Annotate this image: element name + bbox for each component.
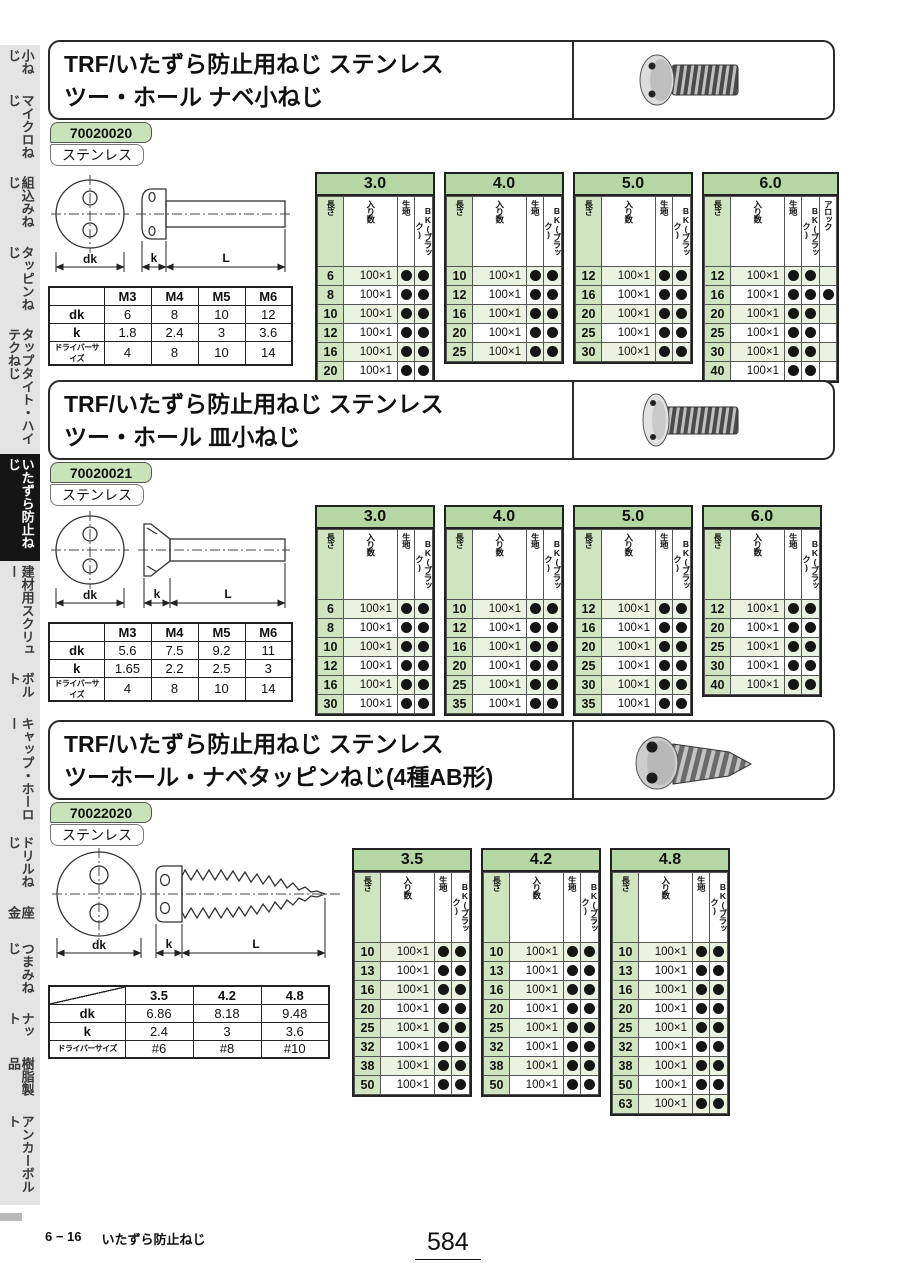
availability-dot bbox=[530, 346, 541, 357]
size-table-header: 5.0 bbox=[575, 507, 691, 529]
title-divider bbox=[572, 722, 574, 798]
qty-cell: 100×1 bbox=[602, 324, 656, 343]
availability-cell bbox=[435, 981, 452, 1000]
availability-dot bbox=[418, 622, 429, 633]
qty-cell: 100×1 bbox=[510, 1076, 564, 1095]
length-cell: 20 bbox=[447, 657, 473, 676]
size-table-5.0: 5.0長さ入り数生地BK(ブラック)12100×116100×120100×12… bbox=[573, 172, 693, 364]
availability-dot bbox=[455, 1079, 466, 1090]
col-header-label: 入り数 bbox=[366, 533, 375, 556]
availability-cell bbox=[785, 638, 802, 657]
qty-cell: 100×1 bbox=[639, 1076, 693, 1095]
availability-dot bbox=[584, 1041, 595, 1052]
availability-dot bbox=[567, 1060, 578, 1071]
length-cell: 25 bbox=[576, 657, 602, 676]
qty-cell: 100×1 bbox=[731, 676, 785, 695]
availability-dot bbox=[547, 308, 558, 319]
availability-dot bbox=[584, 965, 595, 976]
qty-cell: 100×1 bbox=[731, 343, 785, 362]
availability-cell bbox=[581, 962, 599, 981]
table-row: 16100×1 bbox=[613, 981, 728, 1000]
qty-cell: 100×1 bbox=[510, 1019, 564, 1038]
dim-value-cell: #10 bbox=[261, 1040, 329, 1058]
col-header: BK(ブラック) bbox=[415, 197, 433, 267]
qty-cell: 100×1 bbox=[510, 1057, 564, 1076]
page-edge-mark bbox=[0, 1213, 22, 1221]
dim-col-header: M5 bbox=[198, 287, 245, 305]
table-row: 12100×1 bbox=[705, 267, 837, 286]
sidebar-tab[interactable]: タップタイト・ハイテクねじ bbox=[0, 324, 40, 454]
col-header-label: BK(ブラック) bbox=[673, 533, 690, 594]
sidebar-tab[interactable]: タッピンねじ bbox=[0, 242, 40, 324]
product-code-badge: 70022020 bbox=[50, 802, 152, 823]
availability-dot bbox=[418, 327, 429, 338]
col-header: BK(ブラック) bbox=[581, 873, 599, 943]
page-number: 584 bbox=[415, 1228, 481, 1260]
sidebar-tab[interactable]: ナット bbox=[0, 1008, 40, 1053]
qty-cell: 100×1 bbox=[731, 600, 785, 619]
availability-cell bbox=[656, 286, 673, 305]
availability-dot bbox=[530, 327, 541, 338]
product-title-box: TRF/いたずら防止用ねじ ステンレス ツー・ホール 皿小ねじ bbox=[48, 380, 835, 460]
availability-dot bbox=[676, 622, 687, 633]
title-divider bbox=[572, 382, 574, 458]
col-header: 長さ bbox=[318, 197, 344, 267]
length-cell: 16 bbox=[576, 619, 602, 638]
dim-value-cell: 8 bbox=[151, 305, 198, 323]
svg-text:k: k bbox=[151, 251, 158, 265]
availability-cell bbox=[544, 324, 562, 343]
length-cell: 30 bbox=[318, 695, 344, 714]
availability-cell bbox=[693, 1095, 710, 1114]
sidebar-tab[interactable]: 樹脂製品 bbox=[0, 1053, 40, 1110]
qty-cell: 100×1 bbox=[473, 619, 527, 638]
availability-cell bbox=[785, 324, 802, 343]
table-row: 32100×1 bbox=[355, 1038, 470, 1057]
availability-cell bbox=[435, 943, 452, 962]
qty-cell: 100×1 bbox=[731, 305, 785, 324]
availability-dot bbox=[455, 946, 466, 957]
availability-cell bbox=[820, 362, 837, 381]
length-cell: 25 bbox=[484, 1019, 510, 1038]
availability-dot bbox=[530, 603, 541, 614]
dim-value-cell: #8 bbox=[193, 1040, 261, 1058]
availability-cell bbox=[415, 695, 433, 714]
qty-cell: 100×1 bbox=[473, 305, 527, 324]
dim-value-cell: 4 bbox=[104, 341, 151, 365]
dim-col-header: M6 bbox=[245, 287, 292, 305]
table-row: 13100×1 bbox=[355, 962, 470, 981]
col-header: BK(ブラック) bbox=[415, 530, 433, 600]
qty-cell: 100×1 bbox=[510, 1000, 564, 1019]
qty-cell: 100×1 bbox=[639, 1095, 693, 1114]
availability-dot bbox=[401, 365, 412, 376]
table-row: 8100×1 bbox=[318, 286, 433, 305]
availability-dot bbox=[547, 346, 558, 357]
availability-dot bbox=[455, 984, 466, 995]
col-header-label: 入り数 bbox=[753, 533, 762, 556]
availability-cell bbox=[544, 676, 562, 695]
size-tables: 3.0長さ入り数生地BK(ブラック)6100×18100×110100×1121… bbox=[315, 505, 822, 716]
availability-dot bbox=[418, 641, 429, 652]
sidebar-tab[interactable]: 小ねじ bbox=[0, 45, 40, 90]
availability-cell bbox=[785, 676, 802, 695]
availability-cell bbox=[802, 305, 820, 324]
availability-cell bbox=[415, 286, 433, 305]
col-header-label: BK(ブラック) bbox=[452, 876, 469, 937]
svg-text:dk: dk bbox=[92, 938, 106, 952]
qty-cell: 100×1 bbox=[639, 1038, 693, 1057]
product-title-box: TRF/いたずら防止用ねじ ステンレス ツー・ホール ナベ小ねじ bbox=[48, 40, 835, 120]
col-header-label: 長さ bbox=[326, 533, 335, 548]
availability-cell bbox=[673, 324, 691, 343]
availability-dot bbox=[584, 1003, 595, 1014]
col-header-label: BK(ブラック) bbox=[673, 200, 690, 261]
availability-cell bbox=[673, 638, 691, 657]
availability-dot bbox=[659, 327, 670, 338]
dim-value-cell: 8 bbox=[151, 677, 198, 701]
availability-cell bbox=[435, 1019, 452, 1038]
dim-row-label: k bbox=[49, 659, 104, 677]
footer-section-number: 6 − 16 bbox=[45, 1229, 82, 1248]
availability-dot bbox=[805, 603, 816, 614]
table-row: 38100×1 bbox=[355, 1057, 470, 1076]
dim-value-cell: 5.6 bbox=[104, 641, 151, 659]
dim-value-cell: 12 bbox=[245, 305, 292, 323]
availability-cell bbox=[673, 305, 691, 324]
availability-dot bbox=[788, 365, 799, 376]
availability-cell bbox=[693, 962, 710, 981]
col-header: 入り数 bbox=[602, 197, 656, 267]
size-table-header: 6.0 bbox=[704, 507, 820, 529]
length-cell: 25 bbox=[355, 1019, 381, 1038]
availability-cell bbox=[693, 981, 710, 1000]
qty-cell: 100×1 bbox=[344, 676, 398, 695]
col-header: BK(ブラック) bbox=[673, 530, 691, 600]
availability-cell bbox=[564, 1019, 581, 1038]
col-header: 長さ bbox=[576, 197, 602, 267]
table-row: 10100×1 bbox=[447, 600, 562, 619]
dim-value-cell: 11 bbox=[245, 641, 292, 659]
availability-cell bbox=[544, 695, 562, 714]
length-cell: 12 bbox=[318, 324, 344, 343]
table-row: 12100×1 bbox=[447, 286, 562, 305]
sidebar-tab[interactable]: 組込みねじ bbox=[0, 172, 40, 242]
availability-cell bbox=[785, 657, 802, 676]
availability-cell bbox=[415, 305, 433, 324]
dim-col-header: 4.8 bbox=[261, 986, 329, 1004]
availability-cell bbox=[544, 343, 562, 362]
qty-cell: 100×1 bbox=[344, 343, 398, 362]
availability-dot bbox=[401, 641, 412, 652]
title-line1: TRF/いたずら防止用ねじ ステンレス bbox=[64, 388, 444, 421]
availability-cell bbox=[802, 343, 820, 362]
qty-cell: 100×1 bbox=[639, 981, 693, 1000]
availability-cell bbox=[415, 676, 433, 695]
availability-cell bbox=[673, 619, 691, 638]
col-header-label: BK(ブラック) bbox=[544, 533, 561, 594]
dim-corner-cell bbox=[49, 287, 104, 305]
sidebar-tab[interactable]: マイクロねじ bbox=[0, 90, 40, 172]
size-table-header: 4.8 bbox=[612, 850, 728, 872]
dim-value-cell: 9.48 bbox=[261, 1004, 329, 1022]
length-cell: 12 bbox=[705, 600, 731, 619]
length-cell: 8 bbox=[318, 286, 344, 305]
title-line2: ツーホール・ナベタッピンねじ(4種AB形) bbox=[64, 761, 493, 794]
qty-cell: 100×1 bbox=[473, 638, 527, 657]
availability-dot bbox=[676, 698, 687, 709]
length-cell: 10 bbox=[613, 943, 639, 962]
dim-col-header: M5 bbox=[198, 623, 245, 641]
availability-cell bbox=[581, 981, 599, 1000]
qty-cell: 100×1 bbox=[731, 619, 785, 638]
col-header-label: 長さ bbox=[713, 200, 722, 215]
availability-dot bbox=[696, 984, 707, 995]
availability-dot bbox=[696, 1022, 707, 1033]
availability-dot bbox=[713, 1060, 724, 1071]
availability-dot bbox=[438, 1003, 449, 1014]
col-header: 生地 bbox=[527, 530, 544, 600]
table-row: 10100×1 bbox=[484, 943, 599, 962]
table-row: 40100×1 bbox=[705, 676, 820, 695]
qty-cell: 100×1 bbox=[731, 267, 785, 286]
product-photo-tapping-screw bbox=[585, 728, 825, 794]
col-header-label: BK(ブラック) bbox=[802, 533, 819, 594]
availability-dot bbox=[547, 641, 558, 652]
col-header: 長さ bbox=[576, 530, 602, 600]
table-row: 16100×1 bbox=[447, 638, 562, 657]
qty-cell: 100×1 bbox=[473, 676, 527, 695]
col-header: 生地 bbox=[527, 197, 544, 267]
availability-cell bbox=[398, 600, 415, 619]
qty-cell: 100×1 bbox=[510, 1038, 564, 1057]
availability-cell bbox=[544, 619, 562, 638]
qty-cell: 100×1 bbox=[381, 1076, 435, 1095]
sidebar-tab[interactable]: ドリルねじ bbox=[0, 832, 40, 902]
availability-dot bbox=[418, 603, 429, 614]
availability-cell bbox=[656, 657, 673, 676]
availability-dot bbox=[676, 660, 687, 671]
col-header-label: 入り数 bbox=[661, 876, 670, 899]
size-table-header: 6.0 bbox=[704, 174, 837, 196]
length-cell: 30 bbox=[576, 343, 602, 362]
length-cell: 38 bbox=[484, 1057, 510, 1076]
availability-dot bbox=[567, 1003, 578, 1014]
availability-dot bbox=[547, 698, 558, 709]
table-row: 30100×1 bbox=[576, 343, 691, 362]
table-row: 16100×1 bbox=[576, 286, 691, 305]
svg-text:L: L bbox=[252, 937, 259, 951]
availability-dot bbox=[696, 1003, 707, 1014]
table-row: 16100×1 bbox=[318, 676, 433, 695]
dim-value-cell: 8.18 bbox=[193, 1004, 261, 1022]
availability-dot bbox=[530, 679, 541, 690]
availability-dot bbox=[713, 946, 724, 957]
availability-cell bbox=[581, 1076, 599, 1095]
qty-cell: 100×1 bbox=[473, 600, 527, 619]
sidebar-tab-selected[interactable]: いたずら防止ねじ bbox=[0, 454, 40, 561]
availability-dot bbox=[438, 1022, 449, 1033]
table-row: 25100×1 bbox=[705, 324, 837, 343]
table-row: 50100×1 bbox=[484, 1076, 599, 1095]
availability-cell bbox=[673, 676, 691, 695]
length-cell: 30 bbox=[576, 676, 602, 695]
col-header-label: 生地 bbox=[697, 876, 706, 891]
col-header: 入り数 bbox=[731, 530, 785, 600]
table-row: 20100×1 bbox=[576, 305, 691, 324]
table-row: 32100×1 bbox=[613, 1038, 728, 1057]
size-table-3.0: 3.0長さ入り数生地BK(ブラック)6100×18100×110100×1121… bbox=[315, 505, 435, 716]
availability-cell bbox=[435, 1057, 452, 1076]
dim-corner-cell bbox=[49, 986, 125, 1004]
col-header-label: 長さ bbox=[713, 533, 722, 548]
dim-row-label: ドライバーサイズ bbox=[49, 341, 104, 365]
col-header: 入り数 bbox=[473, 530, 527, 600]
col-header-label: 長さ bbox=[455, 200, 464, 215]
dim-value-cell: 3 bbox=[245, 659, 292, 677]
product-photo-pan-head-screw bbox=[585, 48, 825, 114]
col-header-label: 入り数 bbox=[495, 533, 504, 556]
col-header: 生地 bbox=[398, 530, 415, 600]
availability-cell bbox=[581, 1057, 599, 1076]
col-header-label: 長さ bbox=[455, 533, 464, 548]
length-cell: 10 bbox=[447, 600, 473, 619]
qty-cell: 100×1 bbox=[602, 286, 656, 305]
availability-dot bbox=[805, 327, 816, 338]
dimension-table: M3M4M5M6dk5.67.59.211k1.652.22.53ドライバーサイ… bbox=[48, 622, 293, 702]
title-line1: TRF/いたずら防止用ねじ ステンレス bbox=[64, 728, 493, 761]
length-cell: 20 bbox=[318, 362, 344, 381]
qty-cell: 100×1 bbox=[639, 1019, 693, 1038]
qty-cell: 100×1 bbox=[602, 343, 656, 362]
availability-cell bbox=[435, 962, 452, 981]
length-cell: 30 bbox=[705, 343, 731, 362]
length-cell: 12 bbox=[447, 286, 473, 305]
availability-cell bbox=[415, 619, 433, 638]
availability-cell bbox=[452, 1038, 470, 1057]
availability-cell bbox=[564, 1057, 581, 1076]
availability-dot bbox=[401, 289, 412, 300]
table-row: 12100×1 bbox=[576, 600, 691, 619]
size-table-4.0: 4.0長さ入り数生地BK(ブラック)10100×112100×116100×12… bbox=[444, 172, 564, 364]
qty-cell: 100×1 bbox=[344, 286, 398, 305]
availability-dot bbox=[418, 679, 429, 690]
table-row: 10100×1 bbox=[447, 267, 562, 286]
availability-cell bbox=[527, 638, 544, 657]
availability-cell bbox=[710, 962, 728, 981]
col-header: 生地 bbox=[564, 873, 581, 943]
dim-value-cell: 3.6 bbox=[261, 1022, 329, 1040]
table-row: 10100×1 bbox=[318, 638, 433, 657]
col-header: 生地 bbox=[785, 197, 802, 267]
availability-dot bbox=[401, 308, 412, 319]
col-header: アロック bbox=[820, 197, 837, 267]
availability-dot bbox=[567, 984, 578, 995]
availability-dot bbox=[438, 1079, 449, 1090]
availability-dot bbox=[401, 622, 412, 633]
size-table-4.2: 4.2長さ入り数生地BK(ブラック)10100×113100×116100×12… bbox=[481, 848, 601, 1097]
size-table-5.0: 5.0長さ入り数生地BK(ブラック)12100×116100×120100×12… bbox=[573, 505, 693, 716]
sidebar-tab[interactable]: ボルト bbox=[0, 668, 40, 713]
col-header-label: 生地 bbox=[660, 533, 669, 548]
availability-cell bbox=[398, 343, 415, 362]
availability-dot bbox=[788, 327, 799, 338]
availability-dot bbox=[530, 622, 541, 633]
length-cell: 40 bbox=[705, 362, 731, 381]
availability-cell bbox=[802, 657, 820, 676]
availability-cell bbox=[415, 657, 433, 676]
sidebar-tab[interactable]: アンカーボルト bbox=[0, 1111, 40, 1206]
sidebar-tab[interactable]: 建材用スクリュー bbox=[0, 561, 40, 668]
availability-cell bbox=[544, 657, 562, 676]
table-row: 16100×1 bbox=[576, 619, 691, 638]
length-cell: 10 bbox=[484, 943, 510, 962]
availability-cell bbox=[398, 695, 415, 714]
product-photo-flat-head-screw bbox=[585, 388, 825, 454]
technical-drawing-pan-head: dk k L bbox=[48, 170, 293, 284]
qty-cell: 100×1 bbox=[381, 1000, 435, 1019]
length-cell: 16 bbox=[447, 305, 473, 324]
size-table-header: 3.0 bbox=[317, 174, 433, 196]
col-header: BK(ブラック) bbox=[802, 530, 820, 600]
availability-cell bbox=[544, 305, 562, 324]
table-row: 20100×1 bbox=[447, 324, 562, 343]
availability-cell bbox=[656, 676, 673, 695]
qty-cell: 100×1 bbox=[731, 286, 785, 305]
availability-dot bbox=[713, 965, 724, 976]
title-line1: TRF/いたずら防止用ねじ ステンレス bbox=[64, 48, 444, 81]
availability-cell bbox=[452, 943, 470, 962]
sidebar-tab[interactable]: 座 金 bbox=[0, 902, 40, 938]
technical-drawing-flat-head: dk k L bbox=[48, 506, 293, 622]
availability-cell bbox=[656, 343, 673, 362]
length-cell: 20 bbox=[576, 638, 602, 657]
availability-cell bbox=[527, 305, 544, 324]
availability-cell bbox=[802, 324, 820, 343]
sidebar-tab[interactable]: キャップ・ホーロー bbox=[0, 713, 40, 832]
col-header-label: BK(ブラック) bbox=[710, 876, 727, 937]
table-row: 20100×1 bbox=[355, 1000, 470, 1019]
availability-cell bbox=[435, 1000, 452, 1019]
availability-dot bbox=[676, 289, 687, 300]
length-cell: 16 bbox=[318, 343, 344, 362]
availability-dot bbox=[659, 289, 670, 300]
col-header: BK(ブラック) bbox=[673, 197, 691, 267]
availability-dot bbox=[788, 346, 799, 357]
size-tables: 3.5長さ入り数生地BK(ブラック)10100×113100×116100×12… bbox=[352, 848, 730, 1116]
availability-cell bbox=[693, 1057, 710, 1076]
availability-cell bbox=[802, 619, 820, 638]
col-header-label: 生地 bbox=[402, 200, 411, 215]
availability-dot bbox=[696, 946, 707, 957]
size-table-6.0: 6.0長さ入り数生地BK(ブラック)12100×120100×125100×13… bbox=[702, 505, 822, 697]
availability-dot bbox=[676, 603, 687, 614]
availability-cell bbox=[415, 324, 433, 343]
qty-cell: 100×1 bbox=[381, 962, 435, 981]
dim-value-cell: 1.65 bbox=[104, 659, 151, 677]
dim-value-cell: 10 bbox=[198, 677, 245, 701]
table-row: 35100×1 bbox=[447, 695, 562, 714]
qty-cell: 100×1 bbox=[639, 962, 693, 981]
dimension-table: 3.54.24.8dk6.868.189.48k2.433.6ドライバーサイズ#… bbox=[48, 985, 330, 1059]
size-table-header: 3.0 bbox=[317, 507, 433, 529]
availability-dot bbox=[401, 679, 412, 690]
sidebar-tab[interactable]: つまみねじ bbox=[0, 938, 40, 1008]
availability-cell bbox=[693, 1076, 710, 1095]
length-cell: 50 bbox=[355, 1076, 381, 1095]
availability-cell bbox=[785, 267, 802, 286]
dim-value-cell: 6.86 bbox=[125, 1004, 193, 1022]
